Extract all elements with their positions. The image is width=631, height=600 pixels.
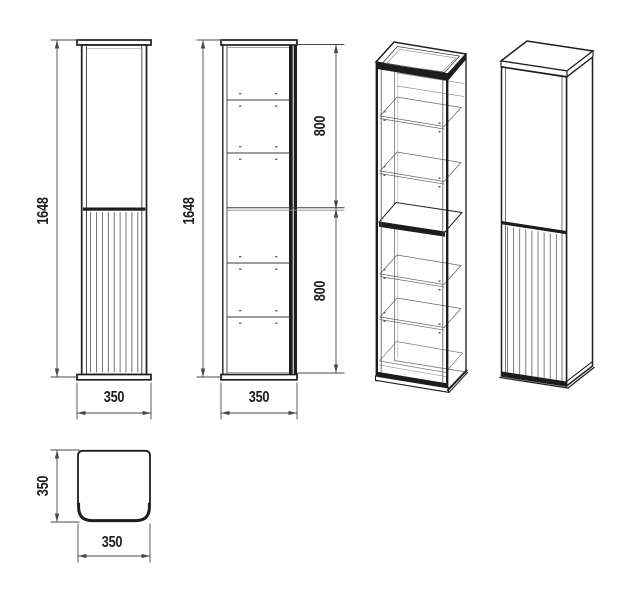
technical-drawing-page: 1648 350 1648 350 800 800 350 350	[0, 0, 631, 600]
dim-label-section-height: 1648	[181, 196, 199, 227]
dim-label-front-width: 350	[102, 389, 126, 407]
dim-label-section-width: 350	[247, 389, 271, 407]
dim-label-top-depth: 350	[35, 474, 53, 498]
dim-label-front-height: 1648	[35, 196, 53, 227]
dim-label-top-width: 350	[100, 534, 124, 552]
iso-closed-view	[500, 41, 594, 388]
dim-label-upper-section: 800	[312, 114, 330, 138]
front-view	[77, 40, 151, 380]
dim-label-lower-section: 800	[312, 279, 330, 303]
iso-open-view	[376, 42, 468, 393]
shelf-pin-marks	[239, 93, 277, 324]
section-view	[221, 40, 344, 380]
top-view	[78, 451, 150, 521]
